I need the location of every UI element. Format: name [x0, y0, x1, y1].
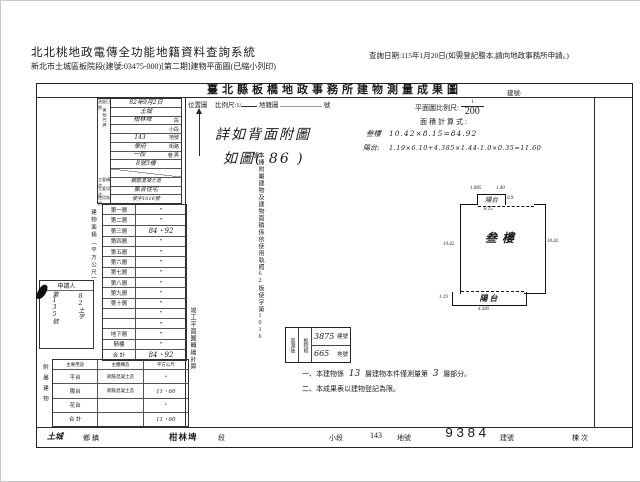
bottom-building-no-value: 9384: [445, 427, 489, 442]
floor-row: 地下層•: [103, 329, 186, 339]
dim-notch-right: 0.9: [507, 196, 513, 201]
sheet-no-blank: [280, 106, 322, 107]
main-floor-label: 叁樓: [478, 229, 526, 246]
location-scale-prefix: 比例尺:1/: [215, 102, 241, 109]
vertical-note-permit: 本棟附屬建物及建物面積係依使用執照62板使字第1016號: [251, 152, 263, 344]
info-row: 集合住宅: [111, 187, 181, 196]
bottom-lot-label: 地號: [397, 433, 411, 443]
annex-label: 附屬建物: [41, 364, 49, 422]
note-1-hw-floor: 3: [430, 369, 442, 379]
map-note-line1: 詳如背面附圖: [215, 124, 311, 144]
calc-row2-name: 陽台:: [363, 143, 379, 153]
stamp-building-row: 3875 建號: [312, 328, 350, 346]
plan-main-rect: [460, 204, 546, 294]
annex-row: 平台鋼筋混凝土造•: [53, 370, 188, 384]
north-arrow-icon: [199, 112, 200, 156]
bottom-dong-label: 棟次: [572, 433, 590, 443]
floor-row: •: [103, 309, 186, 319]
floor-row: 第一層•: [103, 205, 186, 215]
info-row: 使字1016號: [111, 195, 181, 203]
floor-row: •: [103, 319, 186, 329]
calc-row1-formula: 10.42×8.15=84.92: [389, 129, 477, 138]
info-label-address: 建物門牌: [102, 108, 108, 168]
map-note-line2: 如圖( 86 ): [223, 148, 305, 168]
vertical-note-asbuilt: 竣工平面圖轉繪計算: [189, 307, 195, 401]
diagonal-strike: [111, 169, 181, 177]
stamp-col-section: 板院段: [299, 328, 312, 362]
dim-right-height: 10.42: [547, 239, 558, 244]
dim-top1: 1.085: [470, 186, 481, 191]
floor-row: 第四層•: [103, 237, 186, 247]
floor-area-table: 第一層• 第二層• 第三層84・92 第四層• 第五層• 第六層• 第七層• 第…: [102, 204, 187, 361]
bottom-building-no-label: 建號: [500, 433, 514, 443]
resurvey-stamp-box: 查測後 板院段 3875 建號 665 地號: [285, 327, 351, 363]
info-row: 143地號: [111, 134, 181, 143]
document-page: 北北桃地政電傳全功能地籍資料查詢系統 查詢日期:115年1月20日(如需登記謄本…: [0, 0, 640, 482]
info-row: 82年9月2日: [111, 99, 181, 108]
info-row-cancelled: [111, 169, 181, 178]
balcony-label: 陽台: [453, 292, 526, 304]
sheet-title: 臺北縣板橋地政事務所建物測量成果圖: [37, 81, 632, 97]
info-row: 柑林埤段: [111, 117, 181, 126]
stamp-col-resurvey: 查測後: [286, 328, 299, 362]
floor-row: 第五層•: [103, 247, 186, 257]
floor-row: 第九層•: [103, 288, 186, 298]
calc-row2-formula: 1.19×6.10+4.385×1.44-1.0×0.35=11.60: [389, 144, 541, 152]
scale-blank: [241, 106, 257, 107]
annex-table: 主要用途 主體構造 平方公尺 平台鋼筋混凝土造• 陽台鋼筋混凝土造11・60 花…: [52, 359, 189, 427]
survey-sheet-frame: 臺北縣板橋地政事務所建物測量成果圖 建號: 測量日期 建物門牌 主要構造 主要用…: [36, 83, 633, 448]
area-calc-label: 面積計算式:: [420, 117, 469, 127]
note-2: 二、本成果表以建物登記為限。: [302, 384, 400, 394]
floor-row: 第七層•: [103, 268, 186, 278]
floor-row: 騎樓•: [103, 340, 186, 350]
right-column-divider: [594, 97, 595, 427]
stamp-lot-label: 地號: [337, 350, 348, 358]
applicant-box: 申請人 82土字 第135號: [39, 280, 94, 349]
stamp-lot-row: 665 地號: [312, 346, 350, 363]
scale-denominator: 200: [461, 106, 484, 117]
bottom-section-value: 柑林埤: [169, 431, 198, 443]
location-scale-line: 比例尺:1/ 地籍圖 號: [215, 99, 330, 109]
stamp-lot-no: 665: [314, 349, 329, 358]
sheet-no-label: 號: [324, 102, 331, 109]
plan-scale-label: 平面圖比例尺:: [415, 104, 459, 112]
bottom-township-label: 鄉鎮: [83, 433, 101, 443]
cadastral-map-label: 地籍圖: [259, 102, 279, 109]
plan-scale: 平面圖比例尺: 1 200: [415, 100, 484, 117]
bottom-lot-value: 143: [370, 431, 382, 440]
info-label-column: 測量日期 建物門牌 主要構造 主要用途 使用執照: [97, 98, 111, 204]
floor-row: 第六層•: [103, 257, 186, 267]
dim-balcony-bottom: 4.385: [478, 307, 489, 312]
floor-row: 第十層•: [103, 299, 186, 309]
bottom-section-label: 段: [218, 433, 225, 443]
building-info-table: 82年9月2日 土城 柑林埤段 小段 143地號 學府街路 一段巷 弄 8號3樓…: [110, 98, 182, 204]
plan-scale-fraction: 1 200: [461, 100, 484, 117]
annex-header-row: 主要用途 主體構造 平方公尺: [53, 360, 188, 370]
query-date: 查詢日期:115年1月20日(如需登記謄本,請向地政事務所申請。): [369, 50, 569, 61]
note-1-hw-floors: 13: [346, 369, 363, 379]
applicant-label: 申請人: [40, 281, 93, 291]
annex-total-row: 合 計11・60: [53, 413, 188, 426]
dim-top2: 1.40: [496, 186, 505, 191]
dim-left-height: 10.42: [443, 242, 454, 247]
bottom-subsection-label: 小段: [329, 433, 343, 443]
applicant-handwriting-1: 82土字: [76, 293, 85, 341]
note-1: 一、本建物係 13 層建物本件僅測量第 3 層部分。: [302, 369, 471, 379]
dim-top-width: 8.15: [484, 207, 493, 212]
info-row: 學府街路: [111, 143, 181, 152]
bottom-strip-divider: [37, 427, 632, 428]
floor-row: 第八層•: [103, 278, 186, 288]
info-row: 小段: [111, 125, 181, 134]
stamp-building-no: 3875: [314, 332, 334, 341]
plan-notch-balcony: 陽台: [477, 194, 506, 205]
document-subtitle: 新北市土城區板院段(建號:03475-000)[第二期]建物平面圖(已縮小列印): [31, 61, 276, 72]
annex-row: 花台•: [53, 399, 188, 413]
info-row: 8號3樓: [111, 160, 181, 169]
dim-balcony-left: 1.19: [439, 295, 448, 300]
calc-row1-name: 叁樓: [366, 128, 381, 139]
floor-row: 第二層•: [103, 215, 186, 225]
north-arrow-head-icon: [196, 108, 202, 114]
system-title: 北北桃地政電傳全功能地籍資料查詢系統: [31, 44, 256, 60]
bottom-township-value: 土城: [47, 431, 63, 442]
floor-row: 第三層84・92: [103, 226, 186, 237]
info-row: 一段巷 弄: [111, 152, 181, 161]
stamp-building-label: 建號: [337, 332, 348, 340]
applicant-handwriting-2: 第135號: [50, 291, 59, 343]
annex-row: 陽台鋼筋混凝土造11・60: [53, 384, 188, 398]
plan-balcony-strip: 陽台: [452, 292, 527, 306]
notch-balcony-label: 陽台: [478, 195, 505, 205]
building-no-label: 建號:: [507, 87, 522, 97]
stamp-values: 3875 建號 665 地號: [312, 328, 350, 362]
